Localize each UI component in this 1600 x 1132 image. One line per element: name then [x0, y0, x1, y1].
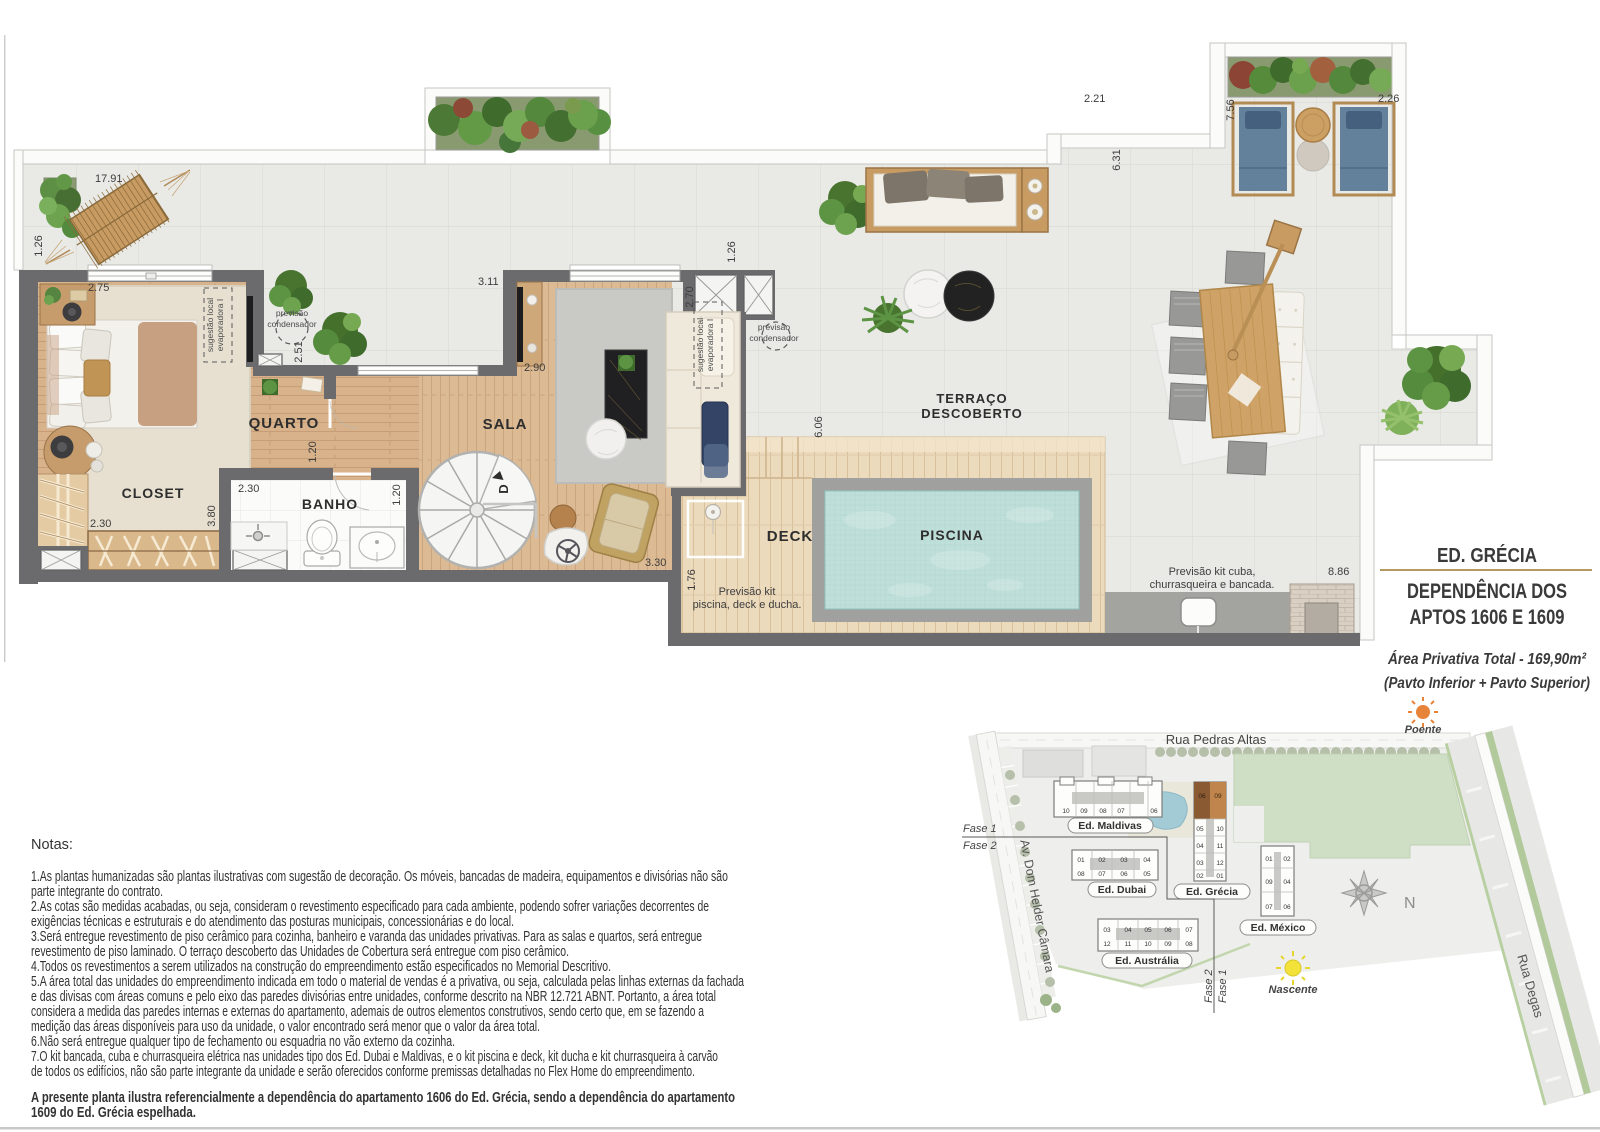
svg-text:08: 08	[1185, 941, 1193, 948]
svg-text:2.90: 2.90	[524, 362, 545, 374]
svg-text:08: 08	[1099, 808, 1107, 815]
svg-text:3.30: 3.30	[645, 557, 666, 569]
svg-text:e das divisas com áreas comuns: e das divisas com áreas comuns e pelo ei…	[31, 989, 716, 1005]
svg-text:ED. GRÉCIA: ED. GRÉCIA	[1437, 544, 1537, 567]
svg-text:medição das áreas disponíveis: medição das áreas disponíveis para uso d…	[31, 1019, 540, 1035]
svg-text:Ed. Grécia: Ed. Grécia	[1186, 886, 1238, 898]
svg-text:1.As plantas humanizadas são p: 1.As plantas humanizadas são plantas ilu…	[31, 869, 728, 885]
svg-text:Fase 1: Fase 1	[963, 823, 997, 835]
svg-text:02: 02	[1283, 856, 1291, 863]
svg-text:1.20: 1.20	[307, 441, 319, 462]
svg-text:09: 09	[1214, 793, 1222, 800]
svg-text:Ed. México: Ed. México	[1251, 922, 1306, 934]
svg-text:01: 01	[1077, 857, 1085, 864]
svg-text:1.26: 1.26	[33, 235, 45, 256]
svg-text:piscina, deck e ducha.: piscina, deck e ducha.	[693, 599, 802, 611]
svg-text:DESCOBERTO: DESCOBERTO	[921, 406, 1023, 421]
svg-text:2.30: 2.30	[90, 518, 111, 530]
svg-text:02: 02	[1098, 857, 1106, 864]
svg-text:condensador: condensador	[749, 333, 798, 343]
svg-text:06: 06	[1120, 871, 1128, 878]
svg-text:3.80: 3.80	[206, 505, 218, 526]
svg-text:Fase 2: Fase 2	[963, 840, 997, 852]
svg-text:4.Todos os revestimentos a ser: 4.Todos os revestimentos a serem utiliza…	[31, 959, 611, 975]
svg-text:APTOS 1606 E 1609: APTOS 1606 E 1609	[1410, 606, 1565, 629]
svg-text:QUARTO: QUARTO	[249, 415, 320, 432]
svg-text:05: 05	[1196, 826, 1204, 833]
svg-text:Poente: Poente	[1405, 724, 1442, 736]
svg-text:10: 10	[1062, 808, 1070, 815]
svg-text:sugestão local: sugestão local	[205, 298, 215, 352]
svg-text:BANHO: BANHO	[302, 496, 358, 512]
svg-text:7.O kit bancada, cuba e churra: 7.O kit bancada, cuba e churrasqueira el…	[31, 1049, 718, 1065]
svg-text:N: N	[1404, 895, 1416, 912]
svg-text:condensador: condensador	[267, 319, 316, 329]
svg-text:06: 06	[1150, 808, 1158, 815]
svg-text:03: 03	[1103, 927, 1111, 934]
svg-text:considera a medida das paredes: considera a medida das paredes internas …	[31, 1004, 705, 1020]
svg-text:17.91: 17.91	[95, 173, 123, 185]
svg-text:Ed. Maldivas: Ed. Maldivas	[1078, 820, 1142, 832]
svg-text:Rua Pedras Altas: Rua Pedras Altas	[1166, 732, 1267, 747]
svg-text:Ed. Dubai: Ed. Dubai	[1098, 884, 1147, 896]
svg-text:5.A área total das unidades do: 5.A área total das unidades do empreendi…	[31, 974, 745, 990]
svg-text:07: 07	[1265, 904, 1273, 911]
svg-text:6.06: 6.06	[813, 416, 825, 437]
svg-text:09: 09	[1265, 879, 1273, 886]
svg-text:de todos os edifícios, não são: de todos os edifícios, não são parte int…	[31, 1064, 695, 1080]
svg-text:A presente planta ilustra refe: A presente planta ilustra referencialmen…	[31, 1090, 735, 1106]
svg-text:evaporadora I: evaporadora I	[215, 299, 225, 351]
svg-text:6.Não será entregue qualquer t: 6.Não será entregue qualquer tipo de fec…	[31, 1034, 455, 1050]
svg-text:03: 03	[1120, 857, 1128, 864]
svg-text:1.76: 1.76	[686, 569, 698, 590]
svg-text:DECK: DECK	[767, 528, 814, 545]
svg-text:12: 12	[1216, 860, 1224, 867]
svg-text:07: 07	[1185, 927, 1193, 934]
svg-text:Notas:: Notas:	[31, 837, 73, 853]
svg-text:2.As cotas são medidas acabada: 2.As cotas são medidas acabadas, ou seja…	[31, 899, 709, 915]
svg-text:10: 10	[1144, 941, 1152, 948]
svg-text:PISCINA: PISCINA	[920, 527, 984, 543]
svg-text:06: 06	[1164, 927, 1172, 934]
svg-text:2.75: 2.75	[88, 282, 109, 294]
svg-text:04: 04	[1196, 843, 1204, 850]
svg-text:2.26: 2.26	[1378, 93, 1399, 105]
svg-text:04: 04	[1124, 927, 1132, 934]
svg-text:previsão: previsão	[758, 322, 790, 332]
svg-text:2.21: 2.21	[1084, 93, 1105, 105]
svg-text:SALA: SALA	[483, 416, 528, 433]
svg-text:04: 04	[1283, 879, 1291, 886]
svg-text:(Pavto Inferior + Pavto Superi: (Pavto Inferior + Pavto Superior)	[1384, 675, 1590, 692]
svg-text:12: 12	[1103, 941, 1111, 948]
svg-text:2.30: 2.30	[238, 483, 259, 495]
svg-text:2.70: 2.70	[684, 286, 696, 307]
svg-text:07: 07	[1117, 808, 1125, 815]
svg-text:8.86: 8.86	[1328, 566, 1349, 578]
svg-text:parte integrante do contrato.: parte integrante do contrato.	[31, 884, 163, 900]
svg-text:07: 07	[1098, 871, 1106, 878]
svg-text:Fase 1: Fase 1	[1217, 969, 1229, 1003]
svg-text:05: 05	[1143, 871, 1151, 878]
svg-text:DEPENDÊNCIA DOS: DEPENDÊNCIA DOS	[1407, 579, 1567, 603]
svg-text:previsão: previsão	[276, 308, 308, 318]
svg-text:04: 04	[1143, 857, 1151, 864]
svg-text:06: 06	[1283, 904, 1291, 911]
svg-text:6.31: 6.31	[1111, 149, 1123, 170]
svg-text:02: 02	[1196, 873, 1204, 880]
svg-text:churrasqueira e bancada.: churrasqueira e bancada.	[1150, 579, 1275, 591]
svg-text:revestimento de piso laminado.: revestimento de piso laminado. O terraço…	[31, 944, 569, 960]
svg-text:Área Privativa Total - 169,90m: Área Privativa Total - 169,90m²	[1387, 649, 1586, 668]
svg-text:01: 01	[1216, 873, 1224, 880]
svg-text:Previsão kit: Previsão kit	[719, 586, 776, 598]
svg-text:TERRAÇO: TERRAÇO	[936, 391, 1007, 406]
svg-text:11: 11	[1125, 941, 1132, 948]
svg-text:Previsão kit cuba,: Previsão kit cuba,	[1169, 566, 1256, 578]
svg-text:1.20: 1.20	[391, 484, 403, 505]
svg-text:exigências técnicas e estrutur: exigências técnicas e estruturais e do a…	[31, 914, 514, 930]
svg-text:06: 06	[1198, 793, 1206, 800]
svg-text:Fase 2: Fase 2	[1203, 969, 1215, 1003]
svg-text:Ed. Austrália: Ed. Austrália	[1115, 955, 1179, 967]
svg-text:1609 do Ed. Grécia espelhada.: 1609 do Ed. Grécia espelhada.	[31, 1105, 196, 1121]
svg-text:3.11: 3.11	[478, 276, 499, 288]
svg-text:01: 01	[1265, 856, 1273, 863]
svg-text:09: 09	[1164, 941, 1172, 948]
svg-text:2.51: 2.51	[293, 341, 305, 362]
svg-text:11: 11	[1217, 843, 1224, 850]
svg-text:3.Será entregue revestimento d: 3.Será entregue revestimento de piso cer…	[31, 929, 702, 945]
svg-text:Nascente: Nascente	[1269, 984, 1318, 996]
svg-text:08: 08	[1077, 871, 1085, 878]
svg-text:sugestão local: sugestão local	[695, 318, 705, 372]
svg-text:09: 09	[1080, 808, 1088, 815]
svg-text:7.56: 7.56	[1225, 99, 1237, 120]
svg-text:CLOSET: CLOSET	[122, 485, 185, 501]
svg-text:10: 10	[1216, 826, 1224, 833]
svg-text:evaporadora I: evaporadora I	[705, 319, 715, 371]
svg-text:D: D	[496, 484, 511, 493]
svg-text:1.26: 1.26	[726, 241, 738, 262]
svg-text:05: 05	[1144, 927, 1152, 934]
svg-text:03: 03	[1196, 860, 1204, 867]
